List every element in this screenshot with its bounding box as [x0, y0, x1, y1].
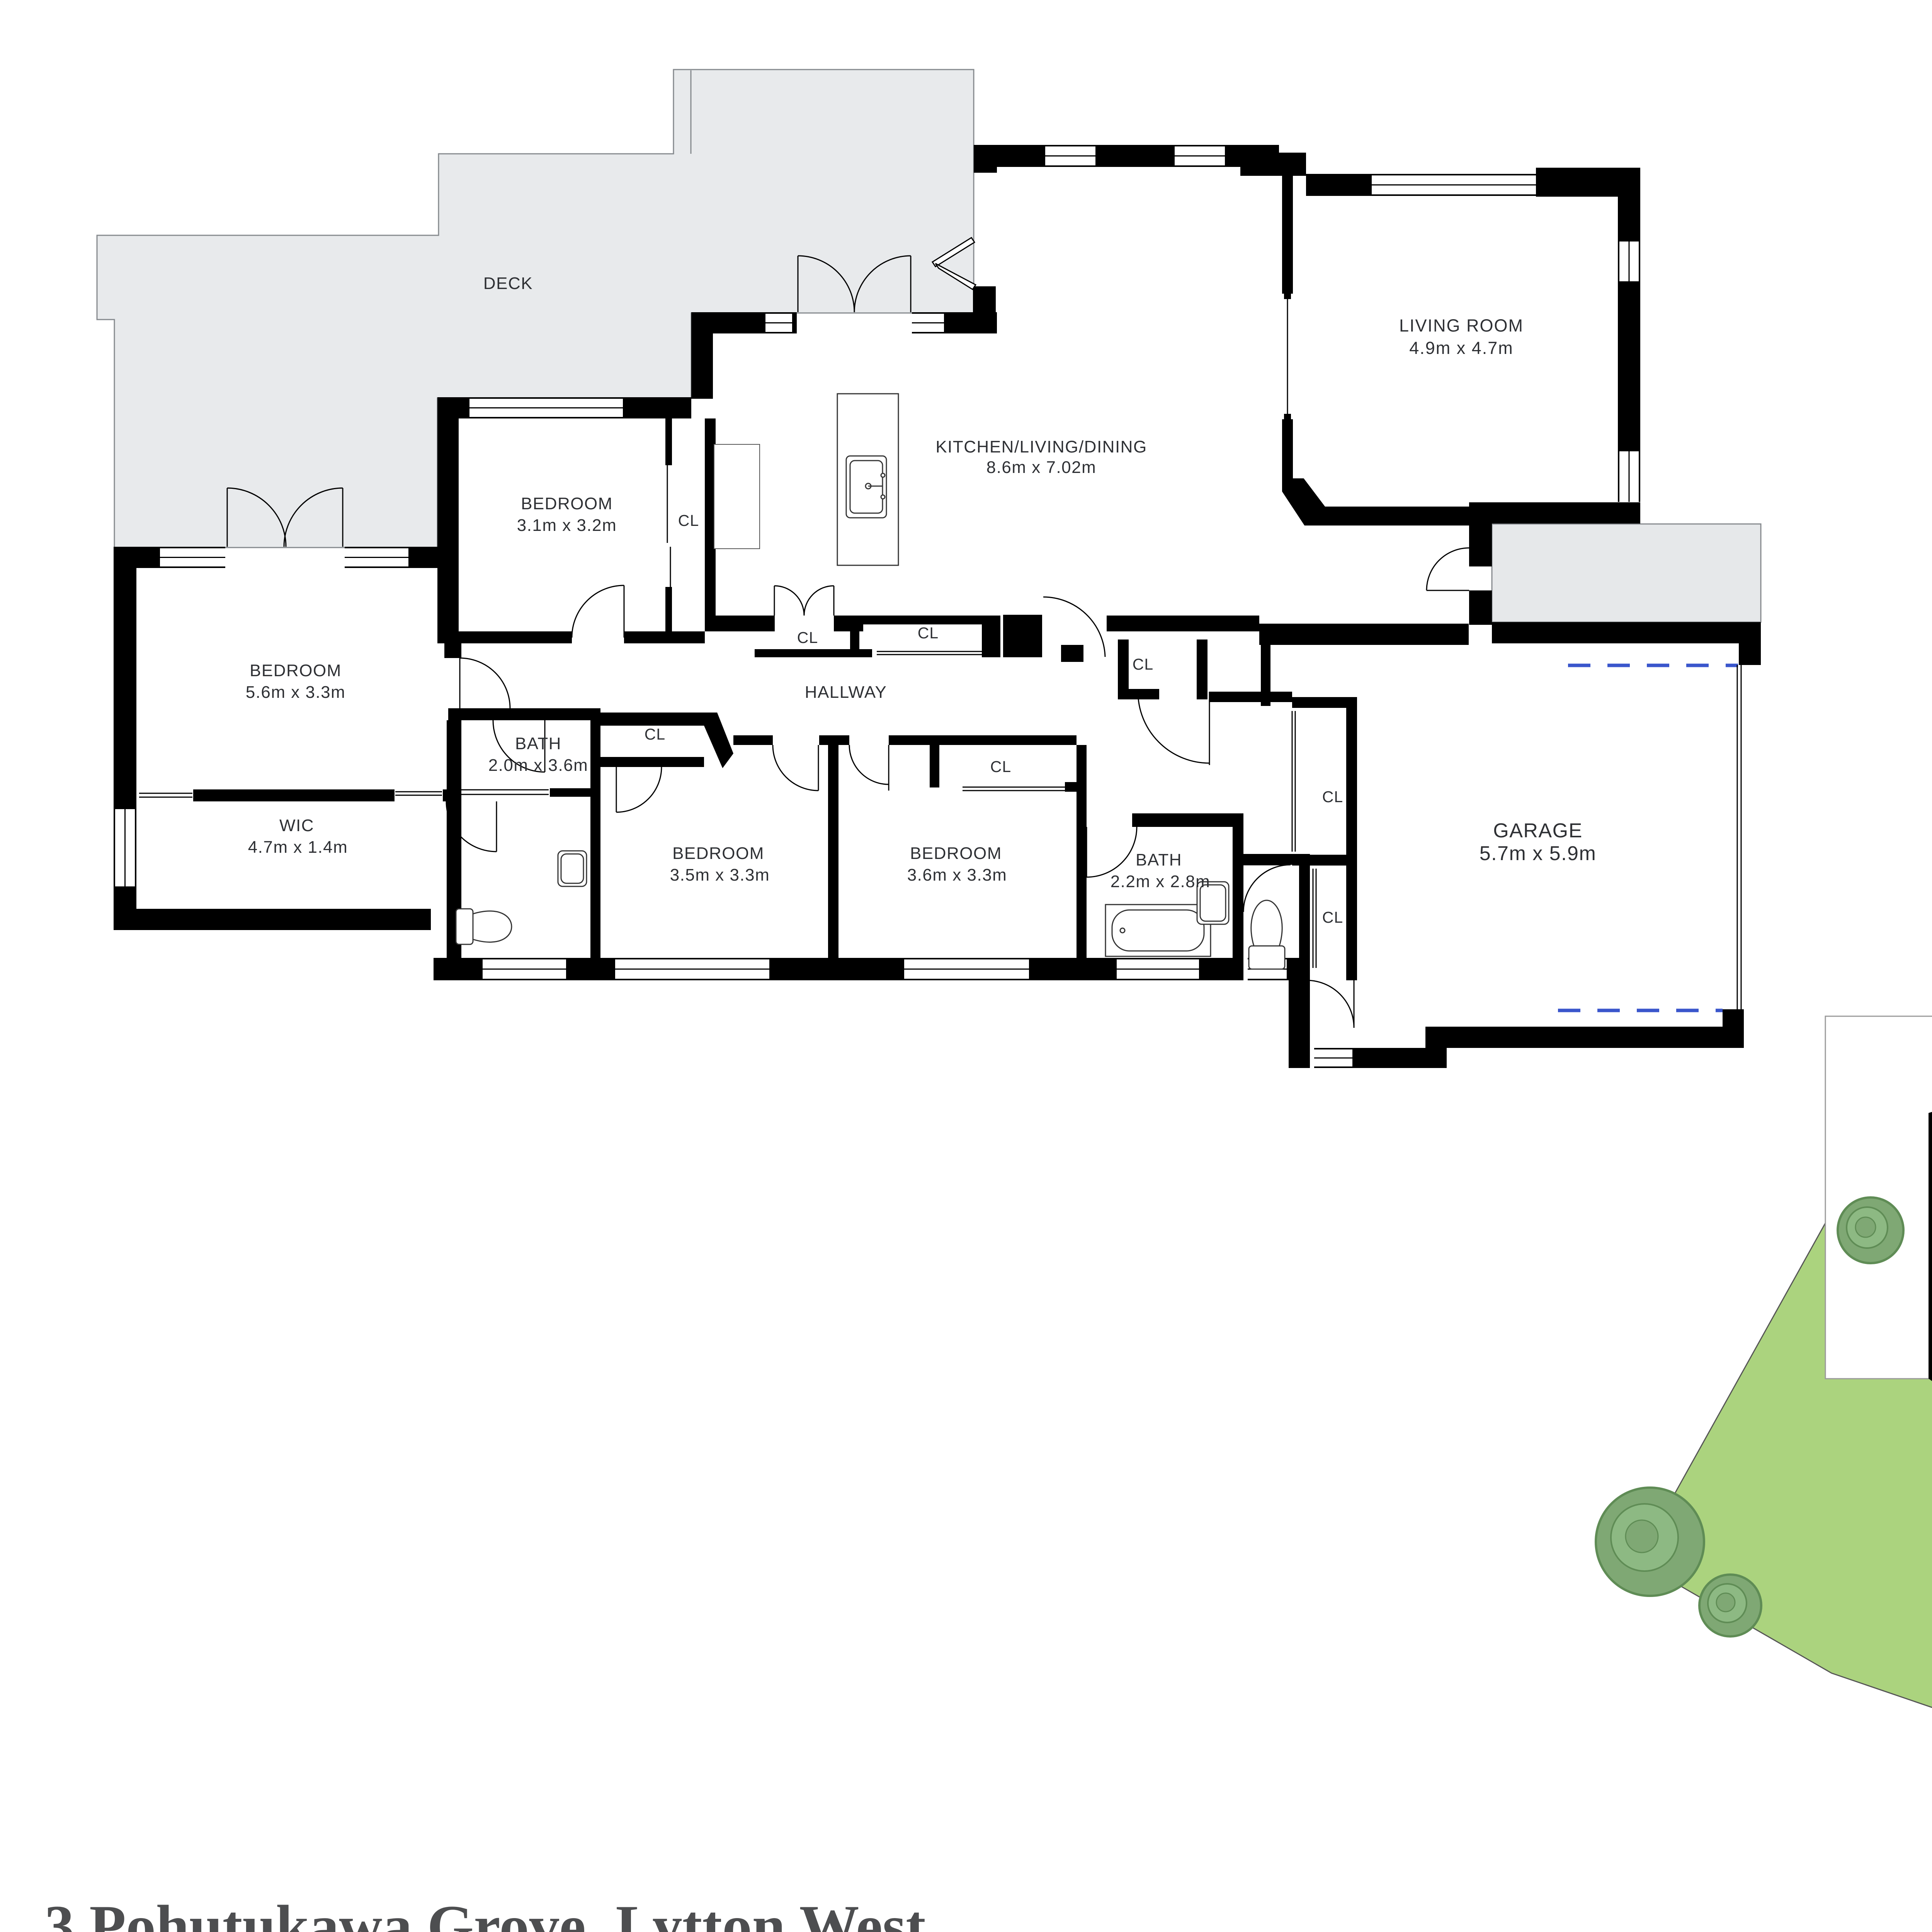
svg-text:2.0m x 3.6m: 2.0m x 3.6m — [488, 756, 588, 775]
svg-text:5.6m x 3.3m: 5.6m x 3.3m — [246, 683, 346, 702]
svg-text:3.1m x 3.2m: 3.1m x 3.2m — [517, 516, 617, 535]
svg-text:BATH: BATH — [515, 734, 561, 753]
svg-text:CL: CL — [990, 758, 1011, 776]
svg-text:BEDROOM: BEDROOM — [250, 661, 342, 680]
svg-text:5.7m x 5.9m: 5.7m x 5.9m — [1480, 842, 1597, 865]
svg-text:2.2m x 2.8m: 2.2m x 2.8m — [1111, 872, 1211, 891]
svg-text:8.6m x 7.02m: 8.6m x 7.02m — [986, 458, 1097, 477]
svg-text:CL: CL — [918, 624, 939, 642]
svg-text:CL: CL — [1322, 908, 1343, 926]
svg-text:BEDROOM: BEDROOM — [672, 844, 764, 863]
svg-text:3 Pohutukawa Grove, Lytton Wes: 3 Pohutukawa Grove, Lytton West — [44, 1893, 926, 1932]
svg-text:3.6m x 3.3m: 3.6m x 3.3m — [907, 866, 1007, 884]
svg-text:4.9m x 4.7m: 4.9m x 4.7m — [1409, 338, 1514, 358]
svg-text:CL: CL — [797, 629, 818, 646]
svg-text:HALLWAY: HALLWAY — [805, 683, 887, 702]
svg-text:BATH: BATH — [1136, 850, 1182, 869]
svg-text:WIC: WIC — [279, 816, 314, 835]
svg-text:BEDROOM: BEDROOM — [521, 494, 613, 513]
svg-text:BEDROOM: BEDROOM — [910, 844, 1002, 863]
svg-text:4.7m x 1.4m: 4.7m x 1.4m — [248, 838, 348, 857]
svg-text:KITCHEN/LIVING/DINING: KITCHEN/LIVING/DINING — [935, 437, 1147, 456]
svg-text:LIVING ROOM: LIVING ROOM — [1399, 316, 1524, 335]
svg-text:3.5m x 3.3m: 3.5m x 3.3m — [670, 866, 770, 884]
svg-text:CL: CL — [645, 725, 665, 743]
svg-text:GARAGE: GARAGE — [1493, 820, 1583, 842]
svg-text:CL: CL — [1133, 655, 1153, 673]
svg-text:CL: CL — [1322, 788, 1343, 806]
svg-text:CL: CL — [678, 512, 699, 529]
svg-text:DECK: DECK — [483, 274, 533, 293]
